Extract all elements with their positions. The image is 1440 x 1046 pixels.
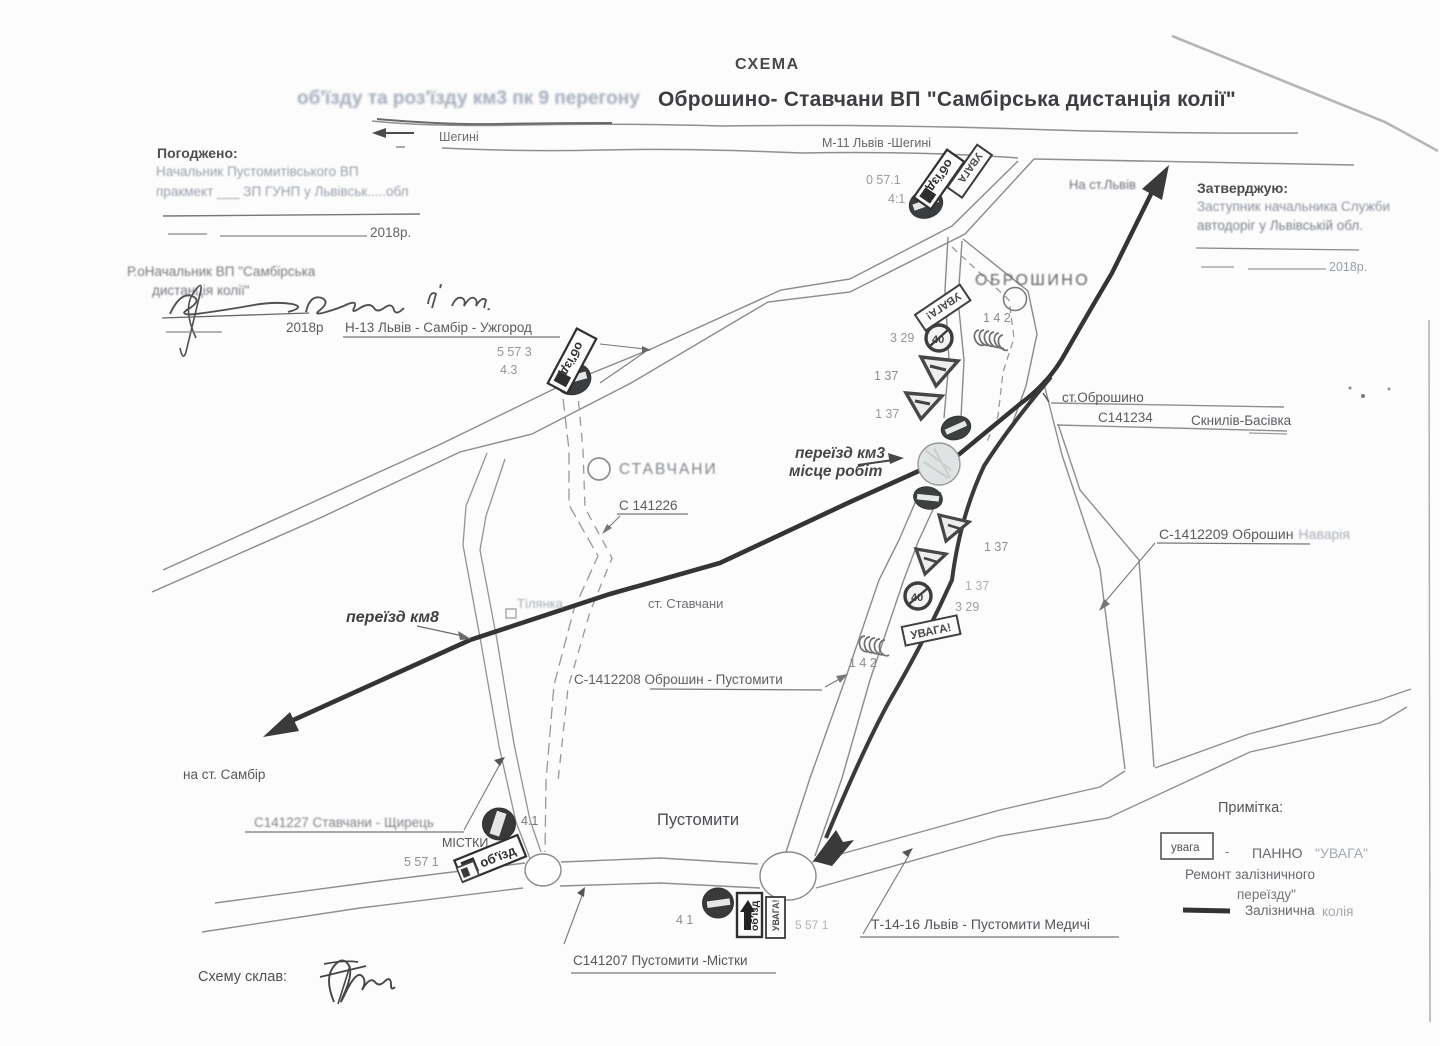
- svg-text:переїзд км3: переїзд км3: [795, 445, 885, 462]
- svg-text:СХЕМА: СХЕМА: [735, 56, 800, 73]
- svg-text:2018р.: 2018р.: [370, 225, 411, 240]
- svg-text:С 141226: С 141226: [619, 498, 678, 513]
- svg-text:переїзду": переїзду": [1237, 887, 1296, 902]
- svg-text:С-1412209 Оброшин: С-1412209 Оброшин: [1159, 526, 1293, 542]
- svg-text:МІСТКИ: МІСТКИ: [442, 836, 488, 850]
- svg-text:Шегині: Шегині: [439, 130, 479, 144]
- svg-text:С141234: С141234: [1098, 410, 1153, 425]
- svg-text:Р.оНачальник ВП "Самбірська: Р.оНачальник ВП "Самбірська: [127, 264, 316, 279]
- svg-text:Заступник начальника Служби: Заступник начальника Служби: [1197, 199, 1390, 214]
- svg-text:3 29: 3 29: [890, 331, 914, 345]
- svg-text:об'їзду та роз'їзду км3 пк 9 п: об'їзду та роз'їзду км3 пк 9 перегону: [297, 88, 640, 109]
- svg-text:Начальник Пустомитівського ВП: Начальник Пустомитівського ВП: [156, 164, 359, 179]
- svg-text:ст.Оброшино: ст.Оброшино: [1062, 390, 1144, 405]
- svg-text:об'їзд: об'їзд: [749, 900, 761, 931]
- svg-text:увага: увага: [1171, 842, 1200, 854]
- svg-text:5 57 1: 5 57 1: [404, 855, 439, 869]
- svg-text:ОБРОШИНО: ОБРОШИНО: [975, 272, 1090, 289]
- svg-text:4.3: 4.3: [500, 363, 517, 377]
- svg-text:ст. Ставчани: ст. Ставчани: [648, 596, 723, 611]
- svg-text:4:1: 4:1: [888, 192, 905, 206]
- svg-text:"УВАГА": "УВАГА": [1315, 845, 1368, 861]
- svg-text:на ст. Самбір: на ст. Самбір: [183, 767, 265, 782]
- svg-text:Залізнична: Залізнична: [1245, 903, 1315, 918]
- svg-text:С141207 Пустомити -Містки: С141207 Пустомити -Містки: [573, 953, 748, 968]
- svg-text:Схему склав:: Схему склав:: [198, 969, 287, 985]
- svg-text:Ремонт залізничного: Ремонт залізничного: [1185, 867, 1315, 882]
- svg-text:1 37: 1 37: [965, 579, 989, 593]
- svg-text:5 57 1: 5 57 1: [795, 918, 829, 932]
- svg-text:-: -: [1225, 844, 1229, 859]
- svg-text:С-1412208 Оброшин - Пустомити: С-1412208 Оброшин - Пустомити: [574, 672, 783, 687]
- svg-text:Н-13 Львів - Самбір - Ужгород: Н-13 Львів - Самбір - Ужгород: [345, 320, 532, 335]
- svg-text:0 57.1: 0 57.1: [866, 173, 901, 187]
- svg-text:- Наварія: - Наварія: [1290, 526, 1350, 542]
- svg-text:4.1: 4.1: [521, 814, 538, 828]
- svg-text:пракмект ___ ЗП ГУНП у Львівсь: пракмект ___ ЗП ГУНП у Львівськ.....обл: [156, 184, 409, 199]
- svg-text:1 37: 1 37: [984, 540, 1008, 554]
- svg-text:1 4 2: 1 4 2: [983, 311, 1011, 325]
- svg-text:2018р: 2018р: [286, 320, 324, 335]
- svg-text:Скнилів-Басівка: Скнилів-Басівка: [1191, 413, 1292, 428]
- svg-text:С141227 Ставчани - Щирець: С141227 Ставчани - Щирець: [254, 815, 434, 830]
- svg-text:1 4 2: 1 4 2: [849, 656, 877, 670]
- svg-text:2018р.: 2018р.: [1329, 260, 1367, 274]
- svg-text:М-11 Львів -Шегині: М-11 Львів -Шегині: [822, 136, 931, 150]
- svg-text:ПАННО: ПАННО: [1252, 845, 1303, 861]
- svg-text:Погоджено:: Погоджено:: [157, 145, 238, 161]
- svg-text:Оброшино- Ставчани ВП "Самбірс: Оброшино- Ставчани ВП "Самбірська дистан…: [658, 88, 1236, 111]
- svg-text:автодоріг у Львівській обл.: автодоріг у Львівській обл.: [1197, 218, 1363, 233]
- svg-text:УВАГА!: УВАГА!: [771, 899, 781, 931]
- svg-text:Примітка:: Примітка:: [1218, 800, 1283, 816]
- svg-text:колія: колія: [1322, 904, 1353, 919]
- svg-text:На ст.Львів: На ст.Львів: [1069, 177, 1136, 192]
- svg-text:4 1: 4 1: [676, 913, 693, 927]
- svg-text:переїзд км8: переїзд км8: [346, 609, 439, 626]
- svg-text:місце робіт: місце робіт: [789, 463, 883, 480]
- svg-text:5 57 3: 5 57 3: [497, 345, 532, 359]
- svg-text:Затверджую:: Затверджую:: [1197, 180, 1288, 196]
- svg-text:Пустомити: Пустомити: [657, 811, 739, 829]
- svg-text:Тілянка: Тілянка: [517, 596, 564, 611]
- svg-text:1 37: 1 37: [875, 407, 899, 421]
- svg-text:1 37: 1 37: [874, 369, 898, 383]
- svg-text:Т-14-16 Львів - Пустомити Меди: Т-14-16 Львів - Пустомити Медичі: [871, 916, 1090, 932]
- svg-text:СТАВЧАНИ: СТАВЧАНИ: [619, 461, 718, 478]
- svg-text:3 29: 3 29: [955, 600, 979, 614]
